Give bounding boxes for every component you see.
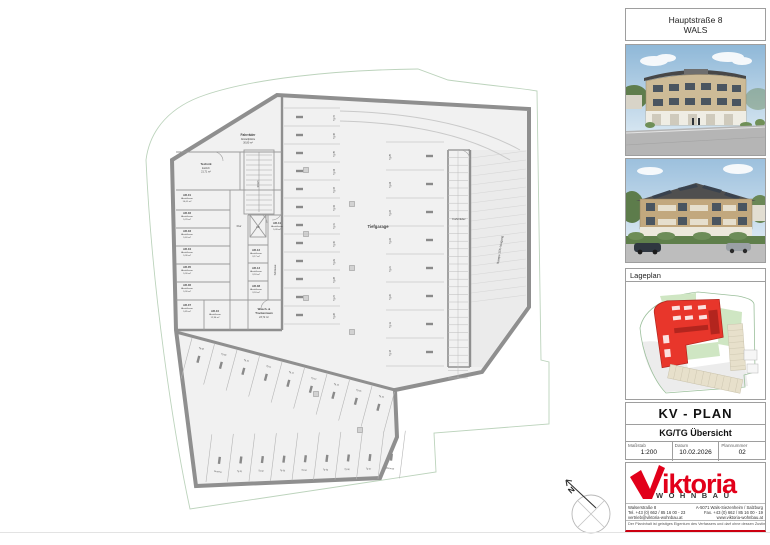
stall-label: Tg 29 — [334, 258, 336, 265]
room-name: Abstellraum — [250, 288, 262, 291]
plan-label: Schleuse — [273, 264, 277, 275]
stall-label: Tg 28 — [334, 276, 336, 283]
column — [358, 428, 363, 433]
project-city: WALS — [684, 25, 708, 35]
project-address-box: Hauptstraße 8 WALS — [625, 8, 766, 41]
stall-label: Tg 24 — [390, 181, 392, 188]
room-code: AR-01 — [183, 193, 192, 197]
room-code: AR-13 — [252, 266, 261, 270]
room-area: 5,30 m² — [183, 290, 191, 293]
room-code: AR-03 — [183, 229, 192, 233]
room-area: 5,85 m² — [183, 310, 191, 313]
wheel-stopper — [426, 183, 433, 185]
plan-label: 23,72 m² — [259, 316, 269, 319]
stall-label: Tg 30 — [334, 240, 336, 247]
room-name: Abstellraum — [181, 233, 193, 236]
room-area: 5,09 m² — [273, 228, 281, 231]
stall-label: Tg 31 — [334, 222, 336, 229]
room-area: 5,29 m² — [183, 218, 191, 221]
room-name: Abstellraum — [181, 215, 193, 218]
plan-name: KG/TG Übersicht — [626, 425, 765, 442]
plan-label: Fahrräder — [241, 133, 257, 137]
stall-line — [400, 431, 406, 479]
floor-plan-drawing: Tg 37Tg 36Tg 35Tg 34Tg 33Tg 32Tg 31Tg 30… — [0, 0, 620, 545]
room-code: AR-04 — [183, 247, 192, 251]
wheel-stopper — [426, 211, 433, 213]
site-plan-title: Lageplan — [626, 269, 765, 282]
column — [314, 392, 319, 397]
wheel-stopper — [296, 206, 303, 208]
contact-right: A-5071 Wals-Siezenheim / Salzburg Fax. +… — [696, 505, 764, 519]
wheel-stopper — [426, 155, 433, 157]
copyright-disclaimer: Der Planinhalt ist geistiges Eigentum de… — [626, 520, 765, 526]
room-name: Abstellraum — [181, 287, 193, 290]
stall-label: Tg 37 — [334, 114, 336, 121]
north-compass: N — [566, 480, 610, 533]
column — [350, 202, 355, 207]
column — [350, 266, 355, 271]
wheel-stopper — [296, 260, 303, 262]
field-massstab: Maßstab 1:200 — [626, 442, 673, 461]
column — [350, 330, 355, 335]
building-photo-1-image — [626, 45, 765, 155]
room-area: 10,01 m² — [183, 200, 192, 203]
room-area: 5,40 m² — [183, 236, 191, 239]
plan-label: Flur — [237, 224, 242, 228]
logo-wordmark: WOHNBAU — [656, 491, 760, 500]
stall-label: Tg 34 — [334, 168, 336, 175]
room-name: Abstellraum — [181, 197, 193, 200]
stall-label: Tg 36 — [334, 132, 336, 139]
north-label: N — [566, 485, 576, 496]
room-name: Abstellraum — [209, 313, 221, 316]
company-block: iktoria WOHNBAU Walserstraße 8 Tel. +43 … — [625, 462, 766, 532]
building-photo-1 — [625, 44, 766, 156]
plan-label: STGH — [257, 180, 260, 187]
building-photo-2-image — [626, 159, 765, 262]
stall-label: Tg 23 — [390, 209, 392, 216]
plan-label: Lift — [256, 225, 260, 229]
stall-label: Tg 26 — [334, 312, 336, 319]
wheel-stopper — [426, 351, 433, 353]
stall-label: Tg 21 — [390, 265, 392, 272]
room-code: AR-11 — [273, 221, 281, 225]
stall-label: Tg 25 — [390, 153, 392, 160]
wheel-stopper — [296, 152, 303, 154]
wheel-stopper — [296, 242, 303, 244]
building-photo-2 — [625, 158, 766, 263]
stall-label: Tg 33 — [334, 186, 336, 193]
room-name: Abstellraum — [250, 270, 262, 273]
stall-label: Tg 18 — [390, 349, 392, 356]
room-code: AR-10 — [211, 309, 220, 313]
wheel-stopper — [296, 134, 303, 136]
wheel-stopper — [426, 295, 433, 297]
room-name: Abstellraum — [271, 225, 283, 228]
wheel-stopper — [426, 323, 433, 325]
plan-label: 30,80 m² — [243, 142, 253, 145]
room-area: 3,18 m² — [252, 291, 260, 294]
contact-left: Walserstraße 8 Tel. +43 (0) 662 / 85 16 … — [628, 505, 696, 519]
wheel-stopper — [296, 224, 303, 226]
plan-sheet: Tg 37Tg 36Tg 35Tg 34Tg 33Tg 32Tg 31Tg 30… — [0, 0, 770, 545]
wheel-stopper — [426, 267, 433, 269]
wheel-stopper — [296, 278, 303, 280]
field-datum: Datum 10.02.2026 — [673, 442, 720, 461]
room-name: Abstellraum — [181, 269, 193, 272]
column — [304, 168, 309, 173]
wheel-stopper — [296, 188, 303, 190]
plan-label: 21,71 m² — [201, 171, 211, 174]
room-area: 3,18 m² — [252, 273, 260, 276]
wheel-stopper — [296, 116, 303, 118]
company-logo: iktoria WOHNBAU — [626, 463, 765, 503]
room-code: AR-02 — [183, 211, 192, 215]
room-area: 3,17 m² — [252, 255, 260, 258]
title-panel: Hauptstraße 8 WALS — [622, 0, 770, 545]
stall-label: Tg 32 — [334, 204, 336, 211]
wheel-stopper — [296, 296, 303, 298]
room-area: 5,30 m² — [183, 272, 191, 275]
room-code: AR-05 — [183, 265, 192, 269]
title-block-fields: Maßstab 1:200 Datum 10.02.2026 Plannumme… — [626, 442, 765, 461]
plan-label: Fahrräder — [452, 217, 465, 221]
field-plannummer: Plannummer 02 — [719, 442, 765, 461]
room-area: 5,36 m² — [183, 254, 191, 257]
contact-block: Walserstraße 8 Tel. +43 (0) 662 / 85 16 … — [626, 503, 765, 520]
room-code: AR-07 — [183, 303, 192, 307]
stall-label: Motorrad — [386, 467, 395, 471]
column — [304, 296, 309, 301]
stall-label: Tg 22 — [390, 237, 392, 244]
room-name: Abstellraum — [181, 251, 193, 254]
stall-label: Tg 27 — [334, 294, 336, 301]
stall-label: Tg 20 — [390, 293, 392, 300]
room-name: Abstellraum — [250, 252, 262, 255]
plan-type: KV - PLAN — [626, 403, 765, 425]
title-block: KV - PLAN KG/TG Übersicht Maßstab 1:200 … — [625, 402, 766, 460]
wheel-stopper — [296, 314, 303, 316]
room-area: 12,96 m² — [211, 316, 220, 319]
room-code: AR-08 — [252, 284, 261, 288]
stall-label: Tg 19 — [390, 321, 392, 328]
site-plan-box: Lageplan — [625, 268, 766, 400]
room-code: AR-12 — [252, 248, 261, 252]
site-plan-map — [626, 282, 765, 398]
room-code: AR-06 — [183, 283, 192, 287]
plan-label: Trockenraum — [255, 311, 273, 315]
stall-label: Tg 35 — [334, 150, 336, 157]
room-name: Abstellraum — [181, 307, 193, 310]
plan-label: Tiefgarage — [367, 224, 389, 229]
plan-label: Technik — [200, 162, 211, 166]
project-street: Hauptstraße 8 — [669, 15, 723, 25]
wheel-stopper — [426, 239, 433, 241]
wheel-stopper — [296, 170, 303, 172]
